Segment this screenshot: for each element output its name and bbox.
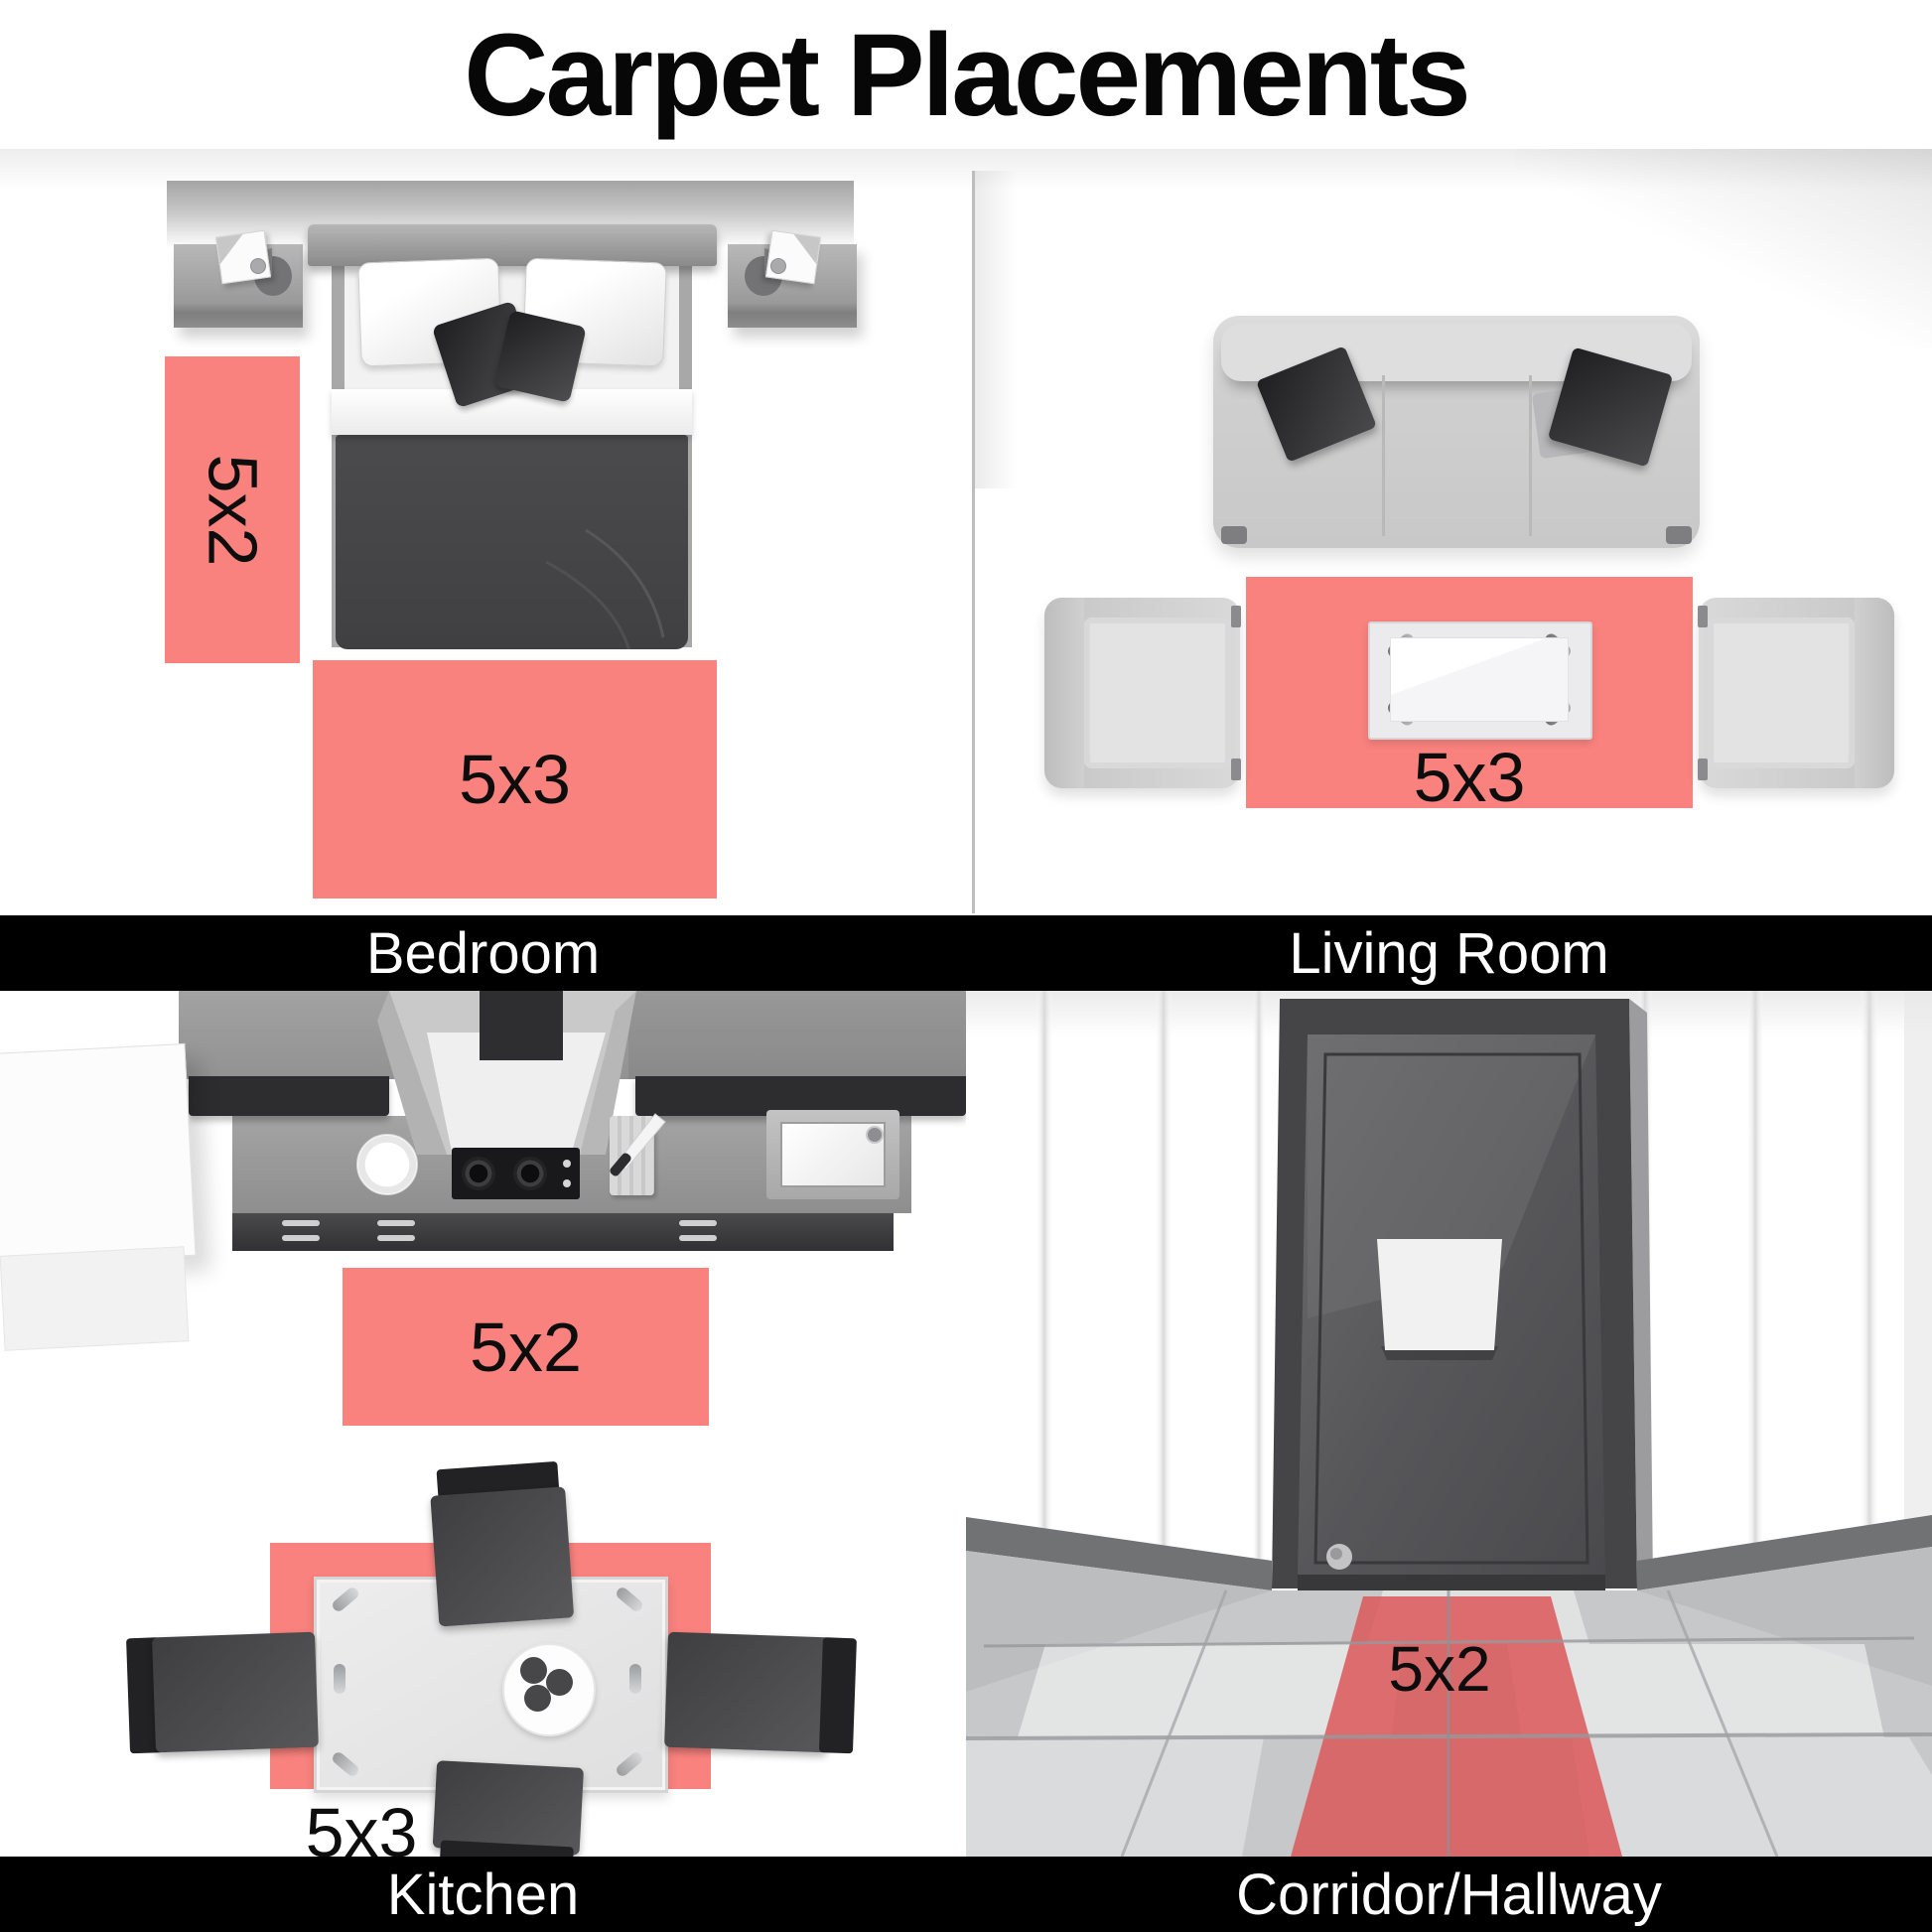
bedroom-label: Bedroom (0, 920, 966, 987)
chair-seat (664, 1632, 831, 1753)
rug-size-label: 5x3 (1414, 738, 1526, 817)
room-label-bar-bottom: Kitchen Corridor/Hallway (0, 1857, 1932, 1932)
wall-panel-seam (1155, 991, 1173, 1562)
plate-icon (356, 1134, 418, 1195)
bed-sheet-fold (332, 389, 692, 435)
drawer-handle (282, 1235, 320, 1241)
sofa-seat-divider (1382, 375, 1385, 536)
rug-size-label: 5x2 (1370, 1632, 1509, 1706)
sofa-foot (1221, 526, 1247, 544)
rug-size-label: 5x3 (459, 740, 571, 819)
carpet-placements-infographic: Carpet Placements (0, 0, 1932, 1932)
sofa-foot (1666, 526, 1692, 544)
dining-chair-left (126, 1632, 319, 1754)
corridor-drawing (966, 991, 1932, 1857)
bed-duvet (336, 435, 688, 649)
fridge (0, 1043, 196, 1266)
tile-highlight (966, 1737, 1264, 1857)
lamp-bulb (770, 258, 786, 274)
wall-panel-seam (1746, 991, 1764, 1559)
wall-corner-shade (1904, 991, 1932, 1547)
door-threshold (1298, 1575, 1605, 1592)
drawer-handle (377, 1220, 415, 1226)
table-leg (331, 1586, 361, 1613)
lamp-shade (215, 230, 271, 284)
kitchen-scene: 5x2 (0, 991, 966, 1857)
armchair-seat (1084, 618, 1231, 768)
armchair-foot (1698, 759, 1708, 780)
fruit (520, 1657, 547, 1684)
wall-panel-seam (1252, 991, 1266, 1577)
counter-front-drawers (232, 1213, 894, 1251)
room-label-bar-top: Bedroom Living Room (0, 915, 1932, 991)
bed-headboard (308, 224, 717, 266)
coffee-table-glass (1390, 637, 1569, 722)
wall-shadow (975, 171, 1017, 488)
rug-size-label: 5x2 (470, 1308, 582, 1387)
armchair-foot (1698, 606, 1708, 627)
burner-icon (513, 1157, 547, 1190)
chair-seat (152, 1632, 319, 1753)
fridge-lower (0, 1246, 189, 1351)
page-title: Carpet Placements (0, 0, 1932, 149)
cooktop-knob (563, 1160, 571, 1168)
table-leg (629, 1664, 641, 1694)
living-room-scene: 5x3 (966, 149, 1932, 915)
rug-size-label: 5x3 (297, 1793, 426, 1857)
faucet-icon (866, 1126, 884, 1144)
table-leg (334, 1664, 345, 1694)
kitchen-label: Kitchen (0, 1862, 966, 1928)
upper-cabinets-right (628, 991, 966, 1079)
fruit (546, 1669, 573, 1696)
kitchen-rug-5x2: 5x2 (343, 1268, 709, 1426)
dining-chair-bottom (431, 1760, 586, 1857)
knife-icon (592, 1108, 681, 1207)
bedroom-rug-5x3: 5x3 (313, 660, 717, 898)
drawer-handle (679, 1235, 717, 1241)
corridor-label-text: Corridor/Hallway (966, 1862, 1932, 1928)
wall-panel-seam (1860, 991, 1879, 1547)
cooktop (452, 1148, 580, 1199)
table-leg (615, 1750, 645, 1778)
drawer-handle (377, 1235, 415, 1241)
fruit (524, 1685, 551, 1712)
dining-chair-top (429, 1460, 575, 1630)
cooktop-knob (563, 1179, 571, 1187)
bedroom-rug-5x2: 5x2 (165, 356, 300, 663)
burner-icon (462, 1157, 495, 1190)
duvet-fold-lines (336, 435, 688, 649)
table-leg (331, 1750, 361, 1778)
wall-panel-seam (1035, 991, 1053, 1552)
armchair-foot (1231, 606, 1241, 627)
bedroom-scene: 5x2 5x3 (0, 149, 966, 915)
rug-size-label: 5x2 (193, 454, 272, 566)
lamp-shade (765, 230, 821, 284)
armchair-back (1855, 598, 1894, 788)
armchair-seat (1708, 618, 1855, 768)
corridor-scene: 5x2 (966, 991, 1932, 1857)
armchair-right (1699, 598, 1894, 788)
lamp-left-icon (214, 230, 300, 300)
armchair-foot (1231, 759, 1241, 780)
drawer-handle (679, 1220, 717, 1226)
lamp-bulb (250, 258, 266, 274)
door-sign (1377, 1239, 1502, 1350)
lamp-right-icon (737, 230, 822, 300)
cabinet-underside-left (189, 1076, 389, 1116)
table-leg (615, 1586, 645, 1613)
drawer-handle (282, 1220, 320, 1226)
fruit-bowl-icon (502, 1643, 596, 1736)
dining-chair-right (664, 1632, 857, 1754)
chair-back (819, 1637, 857, 1753)
coffee-table (1368, 621, 1592, 740)
chair-seat (430, 1486, 574, 1626)
armchair-back (1044, 598, 1084, 788)
sink (766, 1110, 899, 1199)
armchair-left (1044, 598, 1240, 788)
door-knob-inner (1330, 1548, 1342, 1560)
living-room-label: Living Room (966, 920, 1932, 987)
